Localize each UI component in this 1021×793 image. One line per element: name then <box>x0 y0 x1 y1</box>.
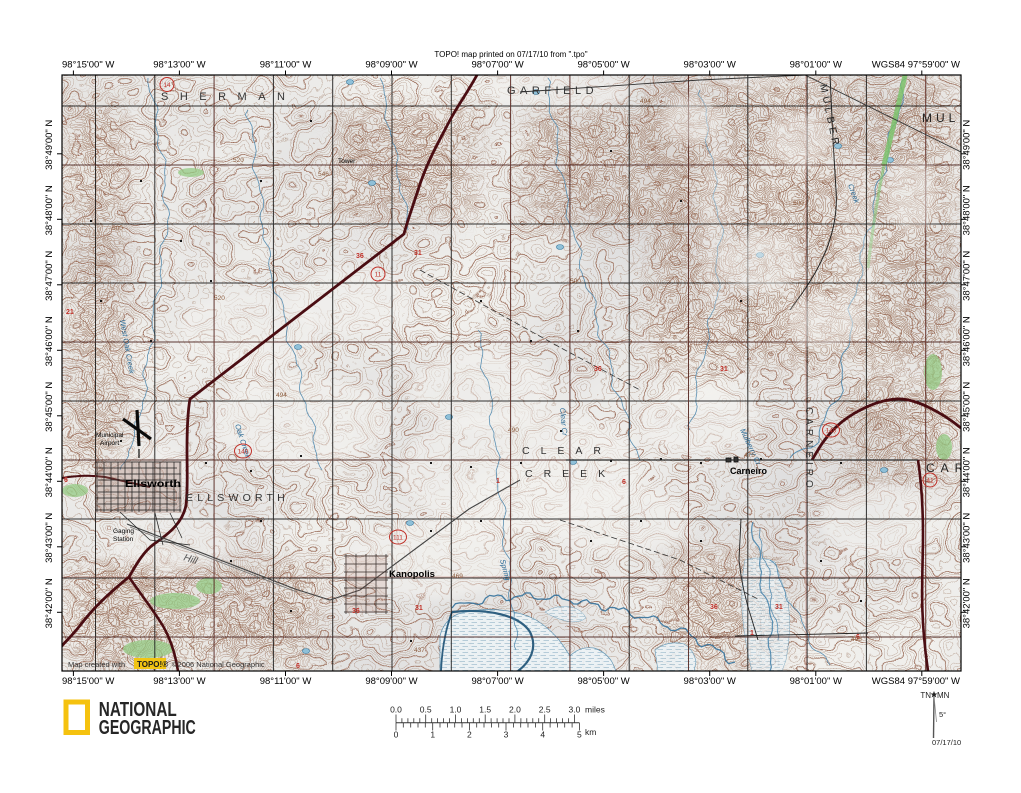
svg-text:546: 546 <box>318 171 329 178</box>
svg-text:MUL: MUL <box>922 111 959 125</box>
svg-text:498: 498 <box>851 636 862 643</box>
svg-text:6: 6 <box>622 479 626 486</box>
svg-text:31: 31 <box>720 366 728 373</box>
svg-text:38°45'00" N: 38°45'00" N <box>44 382 55 432</box>
svg-text:98°13'00" W: 98°13'00" W <box>153 676 205 687</box>
svg-text:520: 520 <box>233 157 244 164</box>
svg-text:494: 494 <box>640 98 651 105</box>
svg-text:MN: MN <box>937 691 950 700</box>
svg-text:41: 41 <box>926 478 934 485</box>
svg-text:31: 31 <box>414 250 422 257</box>
svg-text:1: 1 <box>750 630 754 637</box>
svg-text:475: 475 <box>744 452 755 459</box>
svg-text:31: 31 <box>775 604 783 611</box>
svg-text:98°03'00" W: 98°03'00" W <box>684 676 736 687</box>
svg-text:TOPO! map printed on 07/17/10: TOPO! map printed on 07/17/10 from ".tpo… <box>434 50 587 59</box>
svg-text:3: 3 <box>504 730 509 740</box>
svg-text:TOPO!®: TOPO!® <box>137 660 168 669</box>
svg-text:Station: Station <box>113 536 134 543</box>
svg-text:520: 520 <box>214 295 225 302</box>
svg-text:5°: 5° <box>939 710 946 719</box>
svg-text:WGS84 97°59'00" W: WGS84 97°59'00" W <box>872 676 960 687</box>
svg-text:98°09'00" W: 98°09'00" W <box>365 676 417 687</box>
svg-text:5: 5 <box>577 730 582 740</box>
svg-text:Municipal: Municipal <box>96 432 124 439</box>
svg-text:38°48'00" N: 38°48'00" N <box>962 185 973 235</box>
svg-text:38°43'00" N: 38°43'00" N <box>44 513 55 563</box>
svg-text:Kanopolis: Kanopolis <box>389 569 435 580</box>
svg-text:98°03'00" W: 98°03'00" W <box>684 60 736 71</box>
svg-text:98°15'00" W: 98°15'00" W <box>62 676 114 687</box>
svg-text:miles: miles <box>585 705 605 715</box>
svg-text:11: 11 <box>375 272 382 279</box>
svg-text:ELLSWORTH: ELLSWORTH <box>186 492 289 504</box>
svg-text:2.0: 2.0 <box>509 705 521 715</box>
svg-text:38°46'00" N: 38°46'00" N <box>962 316 973 366</box>
svg-text:38°49'00" N: 38°49'00" N <box>962 120 973 170</box>
svg-text:36: 36 <box>352 608 360 615</box>
svg-text:21: 21 <box>66 309 74 316</box>
svg-text:GEOGRAPHIC: GEOGRAPHIC <box>99 717 196 739</box>
svg-text:98°09'00" W: 98°09'00" W <box>365 60 417 71</box>
svg-text:98°05'00" W: 98°05'00" W <box>577 60 629 71</box>
svg-text:0.5: 0.5 <box>420 705 432 715</box>
svg-text:1: 1 <box>496 478 500 485</box>
svg-text:GARFIELD: GARFIELD <box>507 85 598 97</box>
svg-text:494: 494 <box>276 392 287 399</box>
svg-text:98°13'00" W: 98°13'00" W <box>153 60 205 71</box>
svg-text:CREEK: CREEK <box>525 468 616 480</box>
svg-text:Airport: Airport <box>100 440 119 447</box>
svg-text:140: 140 <box>826 428 837 435</box>
svg-text:98°05'00" W: 98°05'00" W <box>577 676 629 687</box>
svg-text:38°47'00" N: 38°47'00" N <box>44 251 55 301</box>
svg-text:500: 500 <box>570 278 581 285</box>
svg-text:07/17/10: 07/17/10 <box>932 738 961 747</box>
svg-text:6: 6 <box>64 477 68 484</box>
svg-text:38°44'00" N: 38°44'00" N <box>962 447 973 497</box>
svg-text:98°01'00" W: 98°01'00" W <box>790 60 842 71</box>
svg-text:1.0: 1.0 <box>450 705 462 715</box>
svg-text:0: 0 <box>394 730 399 740</box>
svg-text:38°45'00" N: 38°45'00" N <box>962 382 973 432</box>
svg-text:38°44'00" N: 38°44'00" N <box>44 447 55 497</box>
svg-text:SHERMAN: SHERMAN <box>161 91 297 103</box>
svg-text:CARNEIRO: CARNEIRO <box>803 407 814 492</box>
svg-text:1: 1 <box>430 730 435 740</box>
svg-text:36: 36 <box>356 253 364 260</box>
svg-text:98°01'00" W: 98°01'00" W <box>790 676 842 687</box>
svg-text:98°15'00" W: 98°15'00" W <box>62 60 114 71</box>
svg-text:Ellsworth: Ellsworth <box>125 478 181 490</box>
svg-text:14: 14 <box>163 82 171 89</box>
svg-text:Gaging: Gaging <box>113 528 134 535</box>
svg-text:111: 111 <box>393 535 403 542</box>
svg-text:469: 469 <box>452 573 463 580</box>
svg-text:500: 500 <box>112 225 123 232</box>
svg-text:38°46'00" N: 38°46'00" N <box>44 316 55 366</box>
svg-text:31: 31 <box>415 605 423 612</box>
svg-text:98°07'00" W: 98°07'00" W <box>471 60 523 71</box>
svg-text:TN: TN <box>920 691 931 700</box>
svg-text:2: 2 <box>467 730 472 740</box>
svg-text:6: 6 <box>296 663 300 670</box>
svg-text:0.0: 0.0 <box>390 705 402 715</box>
svg-text:98°11'00" W: 98°11'00" W <box>260 676 312 687</box>
svg-text:38°47'00" N: 38°47'00" N <box>962 251 973 301</box>
svg-text:36: 36 <box>594 366 602 373</box>
svg-text:km: km <box>585 727 596 737</box>
svg-text:38°43'00" N: 38°43'00" N <box>962 513 973 563</box>
svg-text:38°42'00" N: 38°42'00" N <box>962 578 973 628</box>
svg-text:©2006 National Geographic: ©2006 National Geographic <box>172 660 265 669</box>
svg-text:38°48'00" N: 38°48'00" N <box>44 185 55 235</box>
svg-text:38°42'00" N: 38°42'00" N <box>44 578 55 628</box>
svg-text:490: 490 <box>508 427 519 434</box>
svg-text:3.0: 3.0 <box>568 705 580 715</box>
svg-text:437: 437 <box>414 647 425 654</box>
svg-text:1.5: 1.5 <box>479 705 491 715</box>
svg-text:2.5: 2.5 <box>539 705 551 715</box>
svg-text:4: 4 <box>540 730 545 740</box>
svg-text:98°07'00" W: 98°07'00" W <box>471 676 523 687</box>
svg-text:38°49'00" N: 38°49'00" N <box>44 120 55 170</box>
svg-text:WGS84 97°59'00" W: WGS84 97°59'00" W <box>872 60 960 71</box>
svg-text:36: 36 <box>710 604 718 611</box>
svg-text:CLEAR: CLEAR <box>522 445 612 457</box>
svg-text:Tower: Tower <box>338 158 356 165</box>
svg-text:Carneiro: Carneiro <box>730 466 768 476</box>
svg-text:500: 500 <box>793 200 804 207</box>
svg-text:140: 140 <box>238 449 249 456</box>
svg-text:98°11'00" W: 98°11'00" W <box>260 60 312 71</box>
svg-text:Map created with: Map created with <box>68 660 125 669</box>
